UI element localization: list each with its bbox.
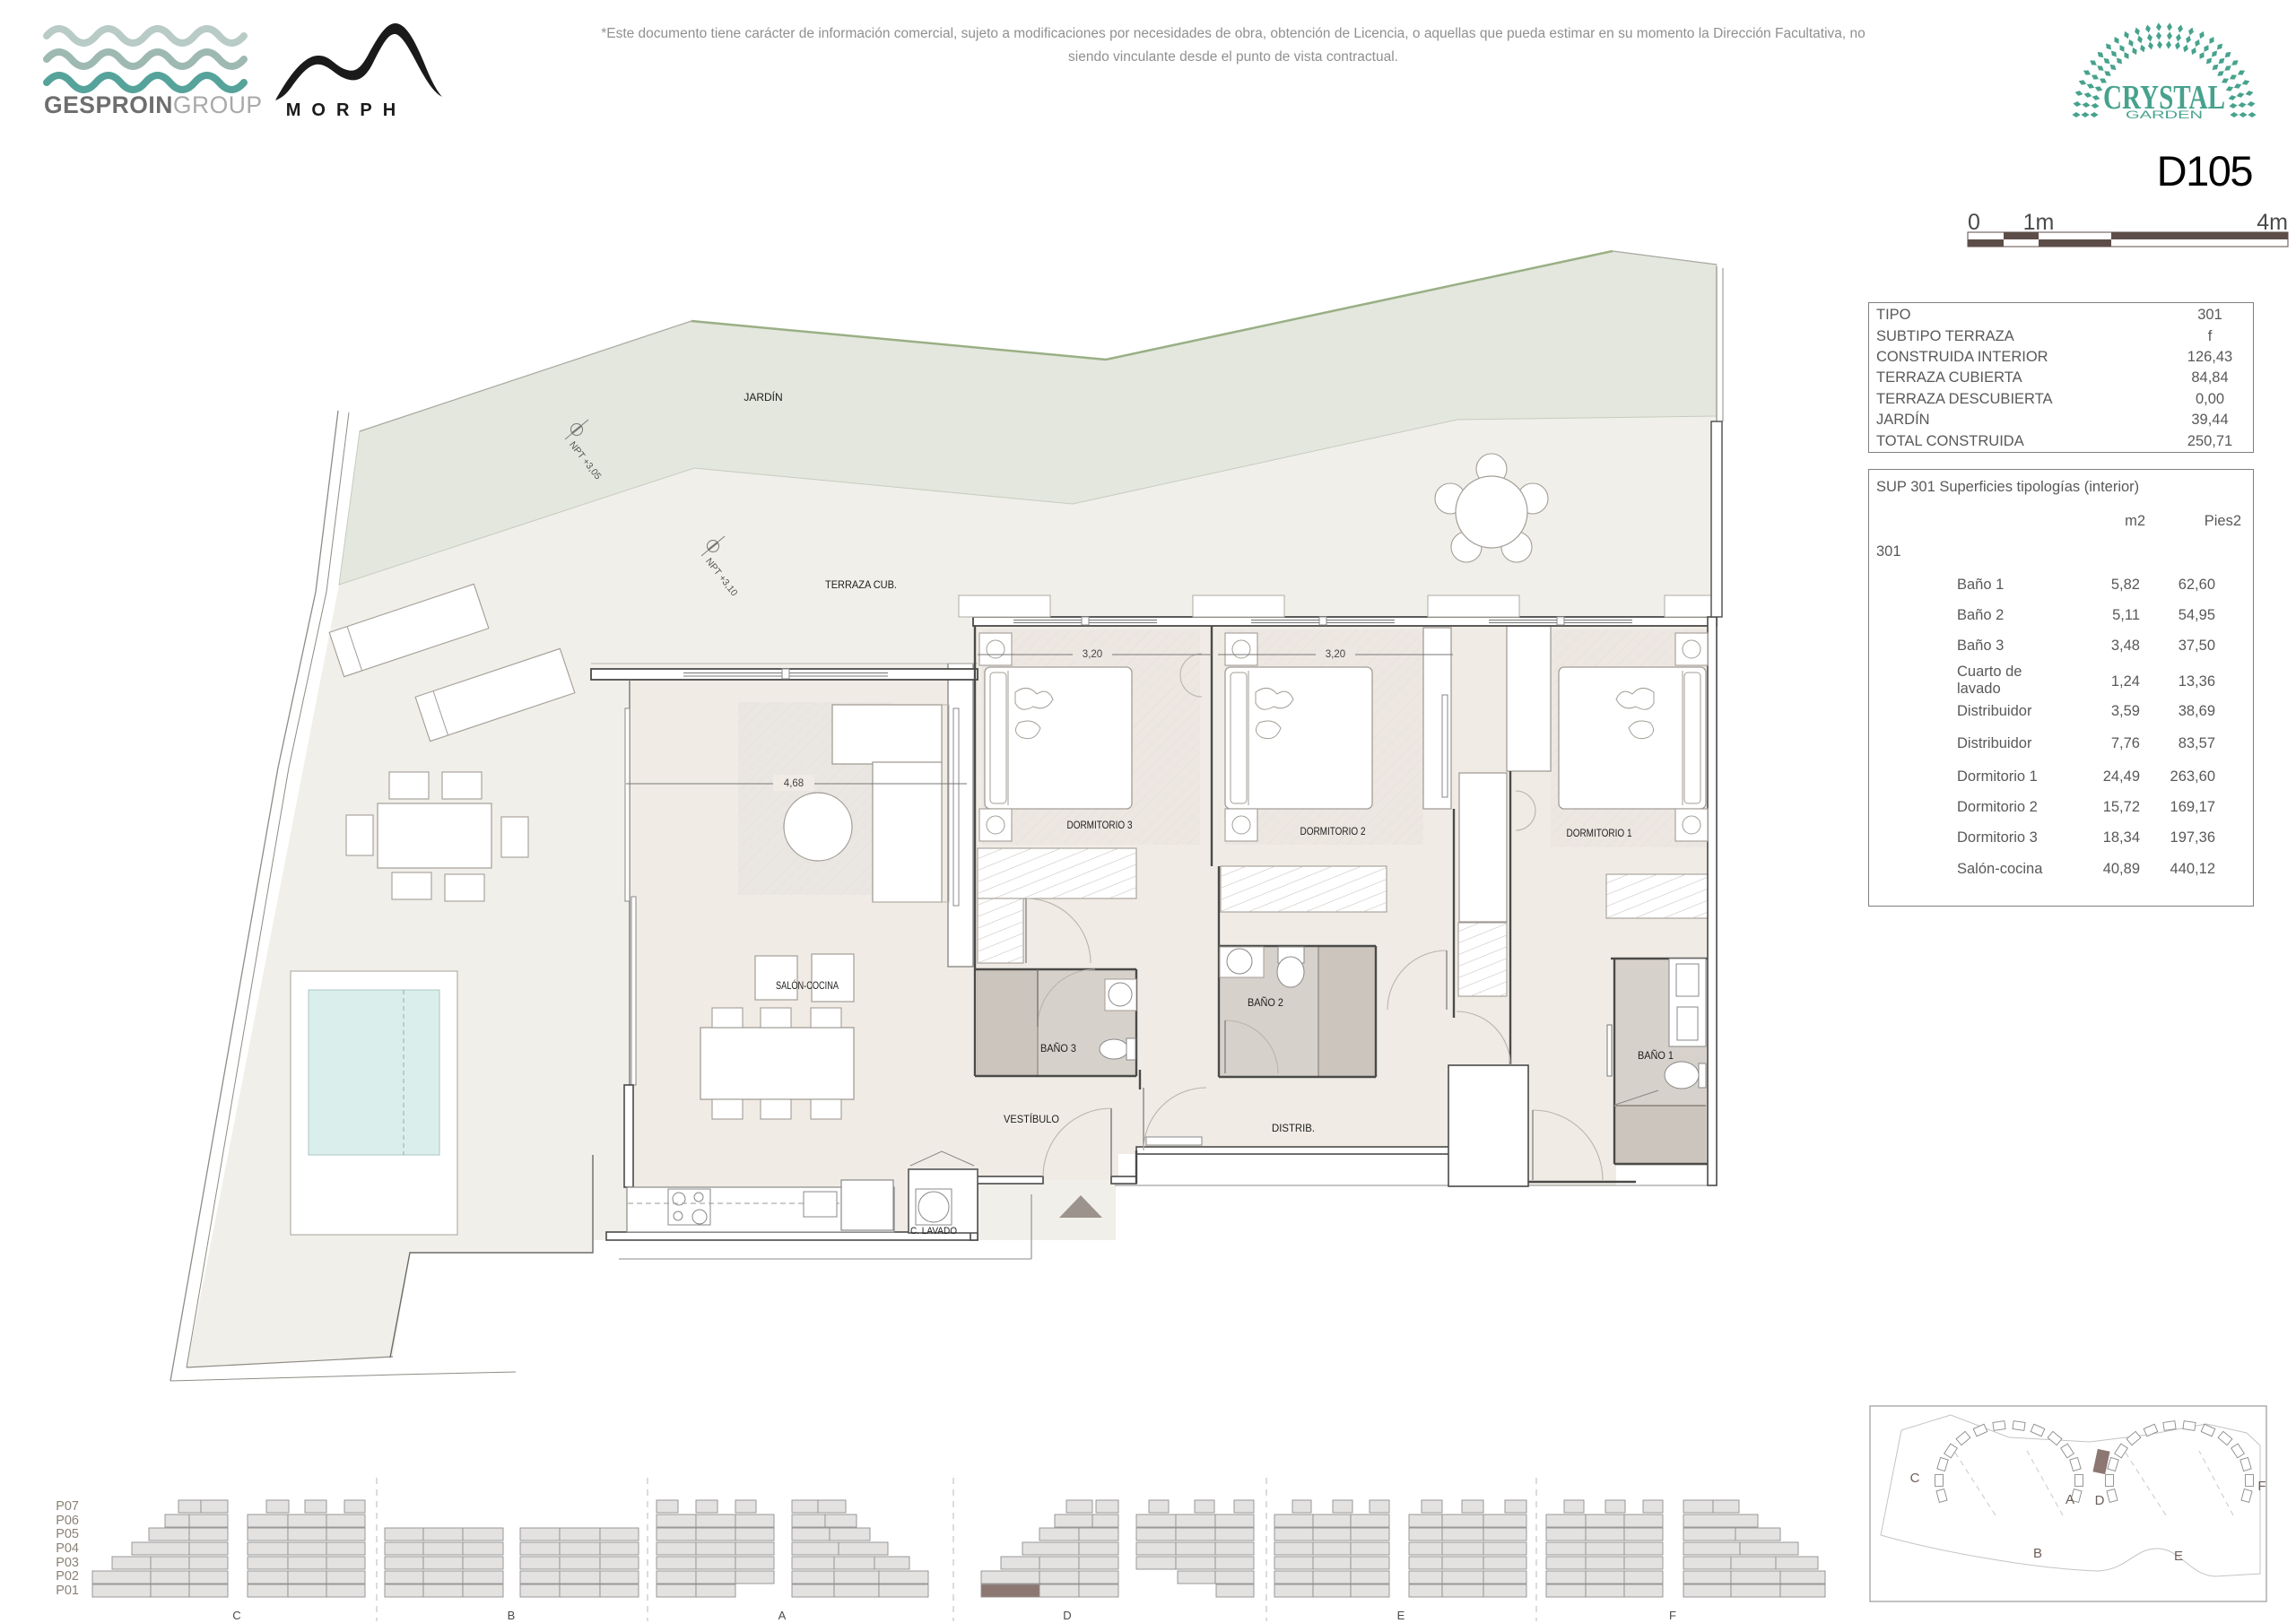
svg-text:BAÑO 1: BAÑO 1 [1638, 1049, 1674, 1062]
svg-text:P01: P01 [56, 1584, 79, 1598]
svg-text:1m: 1m [2023, 210, 2055, 235]
svg-text:F: F [1669, 1609, 1676, 1622]
svg-text:C. LAVADO: C. LAVADO [910, 1226, 957, 1237]
svg-text:D: D [1063, 1609, 1071, 1622]
svg-text:3,20: 3,20 [1326, 649, 1345, 660]
svg-text:P02: P02 [56, 1569, 79, 1584]
svg-text:GARDEN: GARDEN [2126, 110, 2203, 121]
svg-text:JARDÍN: JARDÍN [744, 390, 782, 404]
svg-text:4,68: 4,68 [784, 778, 804, 789]
svg-text:E: E [1397, 1609, 1405, 1622]
svg-text:P03: P03 [56, 1556, 79, 1570]
svg-text:P06: P06 [56, 1514, 79, 1528]
svg-text:A: A [2066, 1492, 2074, 1507]
svg-text:F: F [2257, 1479, 2266, 1494]
svg-text:TERRAZA CUB.: TERRAZA CUB. [825, 578, 897, 591]
svg-text:P07: P07 [56, 1499, 79, 1514]
svg-text:SALÓN-COCINA: SALÓN-COCINA [776, 978, 839, 992]
svg-text:D: D [2095, 1493, 2105, 1508]
svg-text:GESPROINGROUP: GESPROINGROUP [44, 91, 263, 118]
svg-text:C: C [1910, 1471, 1920, 1486]
svg-text:B: B [508, 1609, 516, 1622]
svg-text:0: 0 [1968, 210, 1980, 235]
svg-text:3,20: 3,20 [1083, 649, 1102, 660]
svg-text:A: A [778, 1609, 787, 1622]
svg-text:DISTRIB.: DISTRIB. [1272, 1122, 1315, 1134]
svg-text:4m: 4m [2257, 210, 2288, 235]
svg-text:DORMITORIO 2: DORMITORIO 2 [1300, 825, 1366, 838]
svg-text:MORPH: MORPH [286, 100, 406, 120]
svg-text:E: E [2174, 1549, 2183, 1564]
svg-text:DORMITORIO 1: DORMITORIO 1 [1567, 827, 1632, 839]
svg-text:VESTÍBULO: VESTÍBULO [1004, 1112, 1059, 1125]
svg-text:C: C [232, 1609, 240, 1622]
svg-text:BAÑO 2: BAÑO 2 [1248, 996, 1283, 1009]
svg-text:P04: P04 [56, 1541, 79, 1556]
svg-text:DORMITORIO 3: DORMITORIO 3 [1067, 819, 1133, 831]
svg-text:B: B [2033, 1546, 2042, 1561]
svg-text:P05: P05 [56, 1527, 79, 1541]
svg-text:BAÑO 3: BAÑO 3 [1040, 1042, 1076, 1055]
